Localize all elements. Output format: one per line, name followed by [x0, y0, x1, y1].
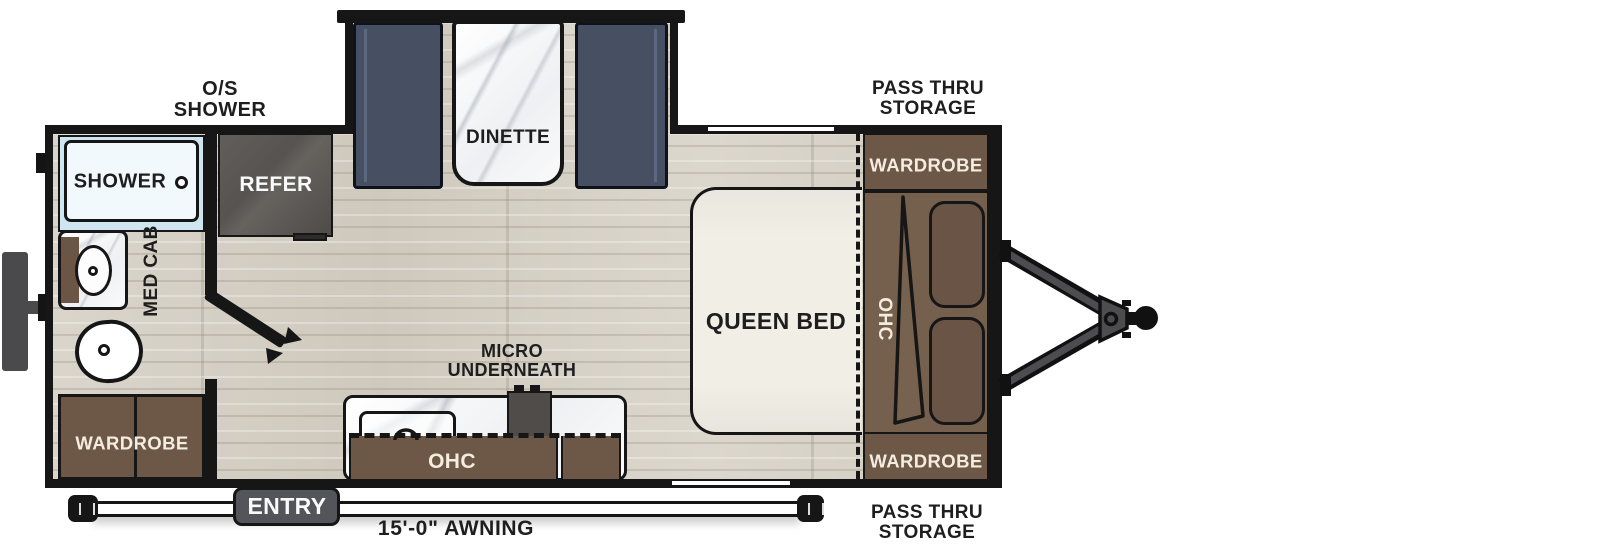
toilet-drain-icon — [98, 344, 110, 356]
pillow-icon — [929, 201, 985, 308]
label-outside-shower-line1: O/S — [174, 79, 266, 100]
dinette-slideout-wall-left — [345, 12, 353, 133]
label-outside-shower-line2: SHOWER — [174, 100, 266, 121]
label-shower: SHOWER — [74, 172, 166, 193]
label-micro-line2: UNDERNEATH — [448, 361, 577, 380]
dinette-bench-left — [353, 22, 443, 189]
pass-thru-storage-dashed-line — [856, 133, 860, 479]
dinette-slideout-wall-right — [670, 12, 678, 133]
label-entry: ENTRY — [247, 494, 326, 518]
dinette-table — [452, 20, 564, 186]
pass-thru-top-line2: STORAGE — [872, 99, 984, 119]
dinette-slideout-end-wall — [337, 10, 685, 23]
label-outside-shower: O/S SHOWER — [174, 79, 266, 121]
pillow-icon — [929, 317, 985, 425]
label-refer: REFER — [239, 174, 312, 196]
dinette-bench-right — [575, 22, 668, 189]
label-bed-ohc: OHC — [874, 297, 894, 340]
wall-front — [988, 125, 1002, 488]
label-queen-bed: QUEEN BED — [706, 309, 846, 333]
trailer-hitch-icon — [1000, 240, 1158, 396]
label-med-cab: MED CAB — [142, 225, 162, 316]
label-dinette: DINETTE — [466, 128, 550, 148]
label-pass-thru-storage-bottom: PASS THRU STORAGE — [871, 503, 983, 543]
window-bedroom-bottom — [672, 481, 790, 485]
label-wardrobe-bottom: WARDROBE — [869, 451, 982, 470]
kitchen-overhead-cabinet-dashed-edge — [349, 433, 621, 438]
shower-drain-icon — [175, 176, 188, 189]
rv-floorplan: O/S SHOWER PASS THRU STORAGE PASS THRU S… — [0, 0, 1600, 545]
bathroom-wall-lower — [205, 379, 217, 481]
refrigerator-vent — [293, 233, 327, 241]
stove-knob-icon — [530, 385, 540, 392]
hitch-ball-icon — [1134, 306, 1158, 330]
pass-thru-bottom-line1: PASS THRU — [871, 503, 983, 523]
rear-bumper — [2, 252, 28, 371]
label-micro-underneath: MICRO UNDERNEATH — [448, 342, 577, 380]
label-micro-line1: MICRO — [448, 342, 577, 361]
label-wardrobe-top: WARDROBE — [869, 155, 982, 174]
stove-knob-icon — [514, 385, 524, 392]
awning-rail — [93, 501, 800, 517]
awning-cap-left — [68, 495, 98, 522]
bathroom-sink-drain-icon — [88, 266, 98, 276]
bathroom-wall-upper — [205, 133, 217, 295]
wall-rear — [45, 125, 53, 488]
label-wardrobe-rear: WARDROBE — [75, 433, 188, 452]
label-awning-length: 15'-0" AWNING — [378, 518, 534, 540]
label-kitchen-ohc: OHC — [428, 451, 476, 473]
label-pass-thru-storage-top: PASS THRU STORAGE — [872, 79, 984, 119]
awning-cap-right — [797, 495, 824, 522]
pass-thru-bottom-line2: STORAGE — [871, 523, 983, 543]
kitchen-overhead-cabinet-right — [561, 436, 621, 481]
pass-thru-top-line1: PASS THRU — [872, 79, 984, 99]
wall-top-left — [45, 125, 353, 134]
window-bedroom-top — [708, 127, 834, 131]
wall-bottom — [45, 479, 1002, 488]
